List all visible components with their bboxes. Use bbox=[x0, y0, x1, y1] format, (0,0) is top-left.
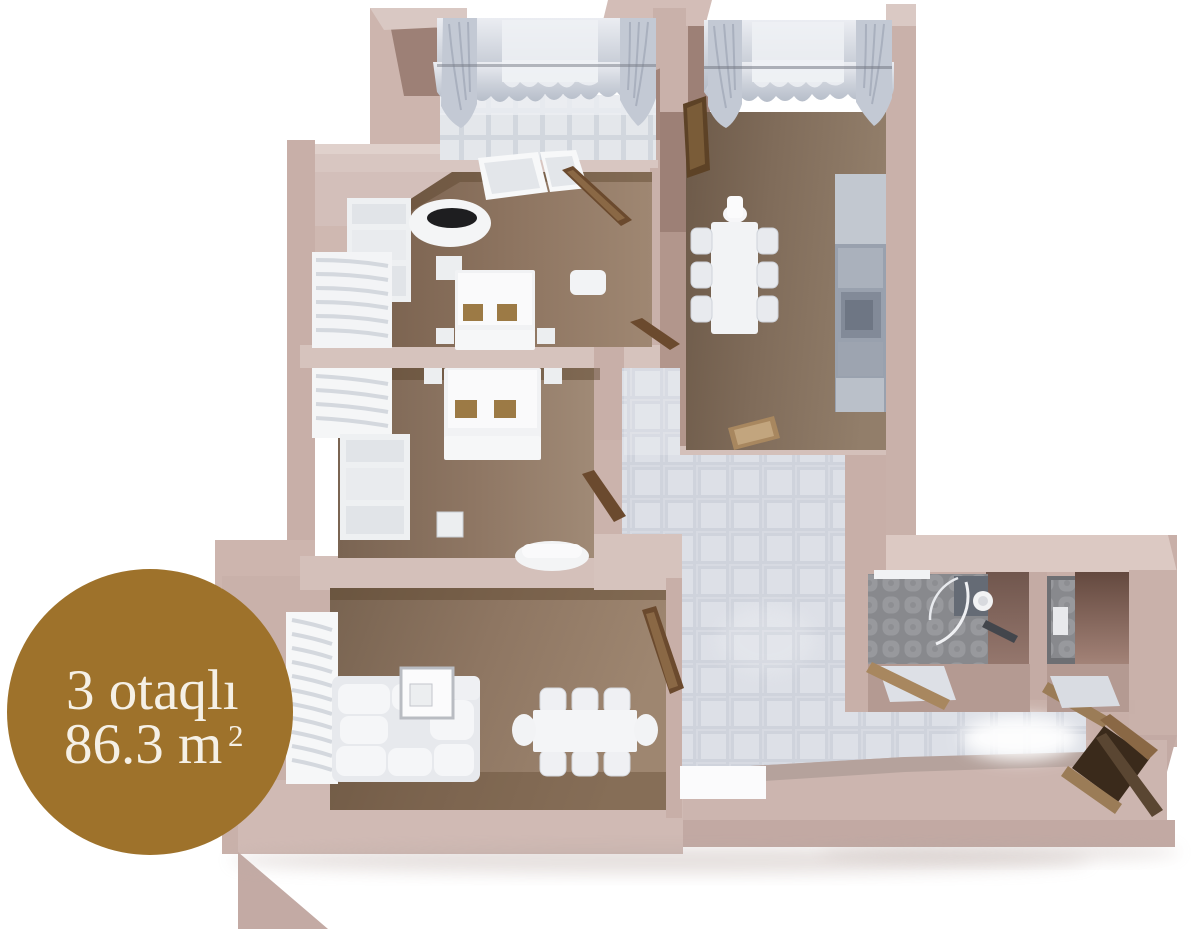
svg-text:86.3 m: 86.3 m bbox=[64, 713, 222, 776]
svg-text:2: 2 bbox=[228, 718, 244, 753]
